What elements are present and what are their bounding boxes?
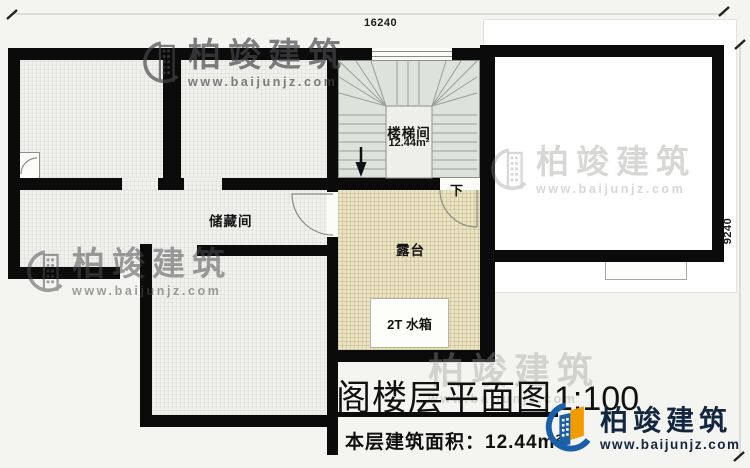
nook-door-swing	[21, 158, 37, 174]
company-logo-brand: 柏竣建筑	[600, 407, 741, 435]
title-underline	[336, 412, 558, 417]
company-logo: 柏竣建筑 www.baijunjz.com	[540, 400, 741, 458]
stair-down-label: 下	[450, 180, 463, 199]
floor-area-note: 本层建筑面积：12.44m²	[345, 427, 563, 454]
storage-terrace-door-swing	[292, 194, 333, 235]
dimension-top-label: 16240	[364, 17, 397, 29]
window-lines	[372, 52, 452, 57]
floor-plan-drawing: 2T 水箱	[0, 0, 750, 468]
company-logo-site: www.baijunjz.com	[600, 438, 741, 452]
stairwell-area-label: 12.44m²	[384, 137, 434, 149]
room-storage-label: 储藏间	[209, 210, 253, 230]
company-logo-icon	[540, 400, 594, 458]
dimension-right-label: 9240	[722, 211, 734, 251]
room-terrace-label: 露台	[396, 239, 425, 259]
